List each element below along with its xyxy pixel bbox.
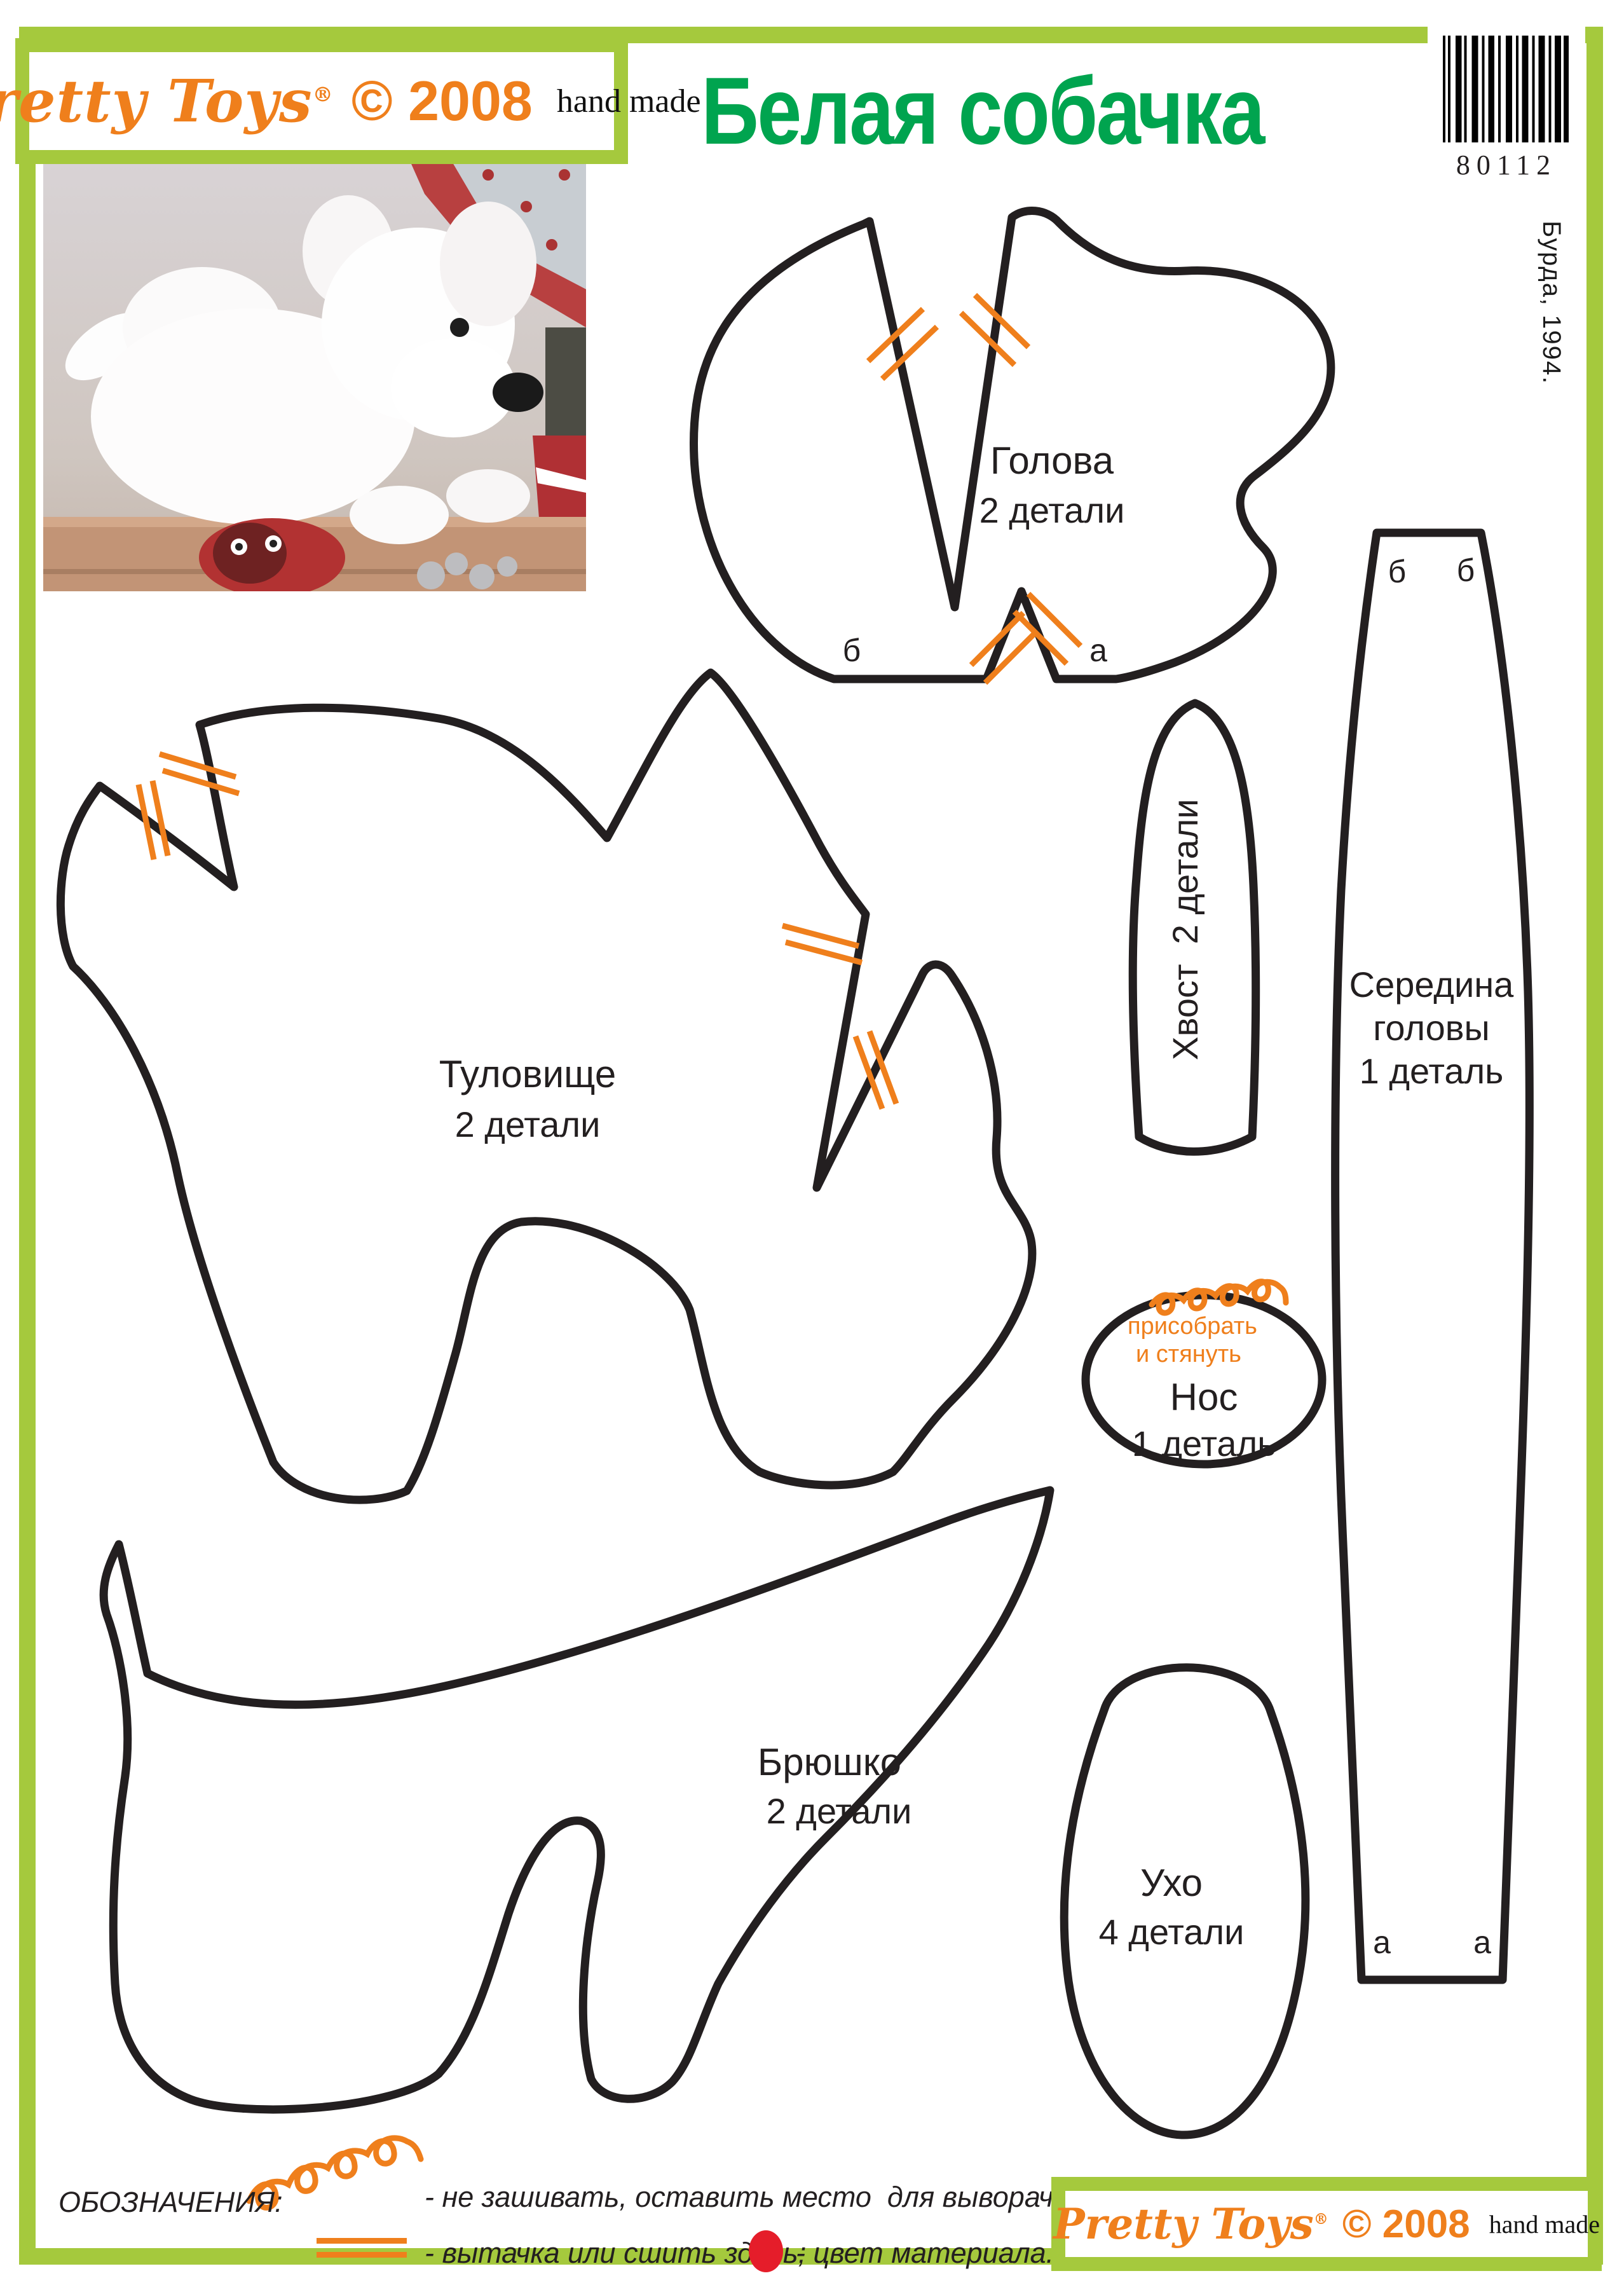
barcode-bars-icon <box>1443 36 1569 142</box>
brand-wordmark: Pretty Toys® <box>1053 2199 1328 2249</box>
header-logo-inner: Pretty Toys® © 2008 hand made <box>29 52 614 150</box>
handmade-label: hand made <box>557 83 701 120</box>
nose-gather-label-2: и стянуть <box>1136 1341 1241 1368</box>
head-label: Голова <box>990 439 1114 482</box>
body-label: Туловище <box>439 1053 616 1095</box>
legend-item-gather: - не зашивать, оставить место для вывора… <box>425 2181 1154 2214</box>
legend-heading: ОБОЗНАЧЕНИЯ: <box>58 2186 283 2219</box>
footer-logo-inner: Pretty Toys® © 2008 hand made <box>1065 2191 1588 2257</box>
brand-wordmark: Pretty Toys® <box>0 67 334 135</box>
head-center-point-b1: б <box>1388 554 1407 589</box>
legend-dart-lines-icon <box>317 2238 407 2260</box>
legend-material-color-dot <box>749 2230 783 2272</box>
head-point-b: б <box>843 633 861 668</box>
head-center-label-2: головы <box>1373 1008 1490 1048</box>
registered-mark: ® <box>1314 2211 1328 2228</box>
header-logo-box: Pretty Toys® © 2008 hand made <box>15 38 628 164</box>
belly-label: Брюшко <box>758 1741 901 1783</box>
head-center-point-a2: а <box>1473 1925 1491 1960</box>
head-point-a: а <box>1089 633 1107 668</box>
belly-qty-label: 2 детали <box>767 1791 912 1831</box>
nose-qty-label: 1 деталь <box>1132 1424 1276 1464</box>
copyright-year: © 2008 <box>351 69 533 134</box>
copyright-year: © 2008 <box>1342 2202 1470 2247</box>
footer-logo-box: Pretty Toys® © 2008 hand made <box>1051 2177 1602 2271</box>
ear-qty-label: 4 детали <box>1099 1912 1245 1952</box>
pattern-sheet: Pretty Toys® © 2008 hand made Белая соба… <box>0 0 1624 2278</box>
head-center-label-1: Середина <box>1349 964 1515 1005</box>
barcode: 80112 <box>1428 18 1585 223</box>
nose-gather-label-1: присобрать <box>1128 1313 1257 1340</box>
head-qty-label: 2 детали <box>979 490 1125 530</box>
tail-label: Хвост 2 детали <box>1165 799 1205 1060</box>
head-center-point-a1: а <box>1373 1925 1391 1960</box>
legend-item-color: - цвет материала. <box>796 2237 1054 2270</box>
head-center-label-3: 1 деталь <box>1360 1051 1504 1091</box>
handmade-label: hand made <box>1489 2209 1600 2239</box>
registered-mark: ® <box>313 82 334 106</box>
head-center-piece-outline <box>1335 533 1530 1980</box>
body-qty-label: 2 детали <box>455 1104 601 1144</box>
ear-label: Ухо <box>1140 1862 1203 1904</box>
barcode-number: 80112 <box>1428 149 1585 181</box>
head-center-point-b2: б <box>1457 552 1475 588</box>
nose-label: Нос <box>1170 1376 1238 1418</box>
